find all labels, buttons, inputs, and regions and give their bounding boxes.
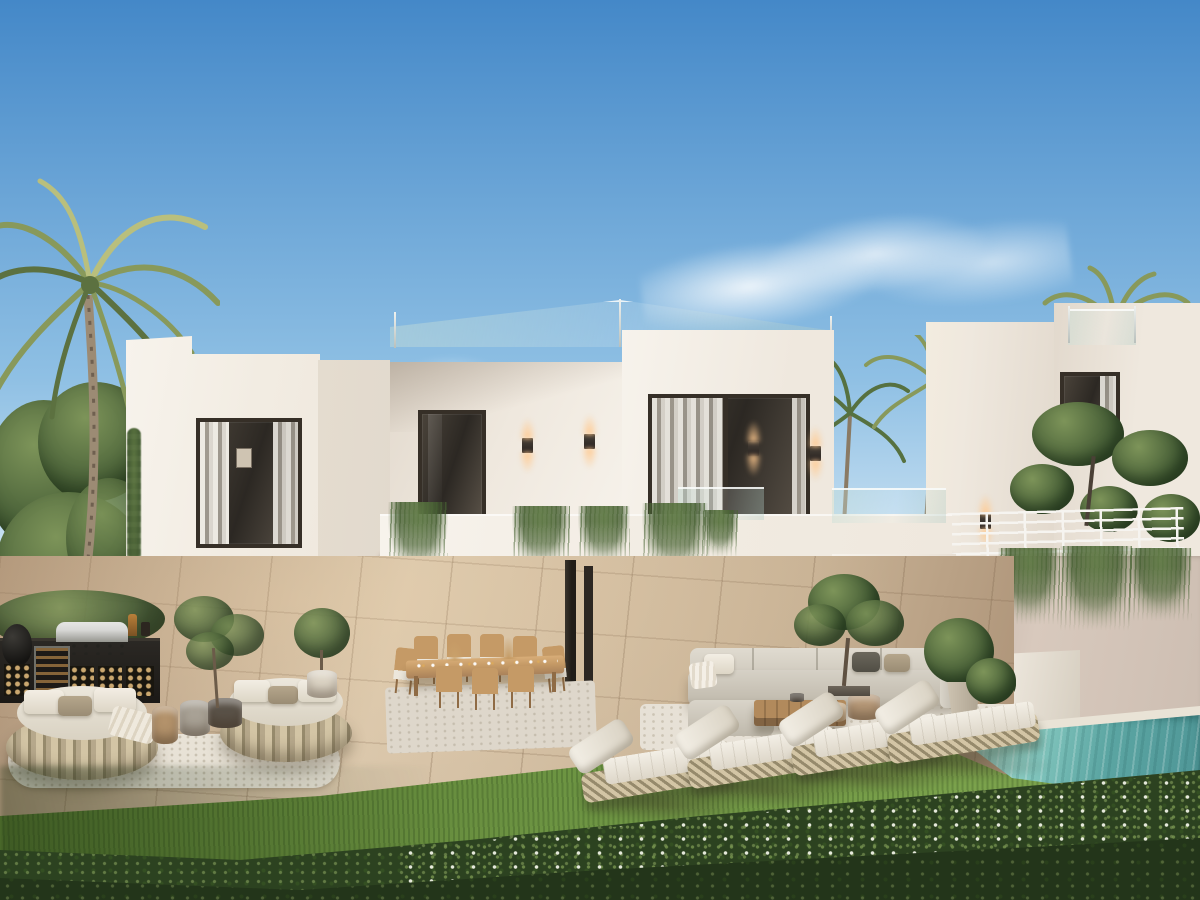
- sofa-throw: [688, 660, 717, 689]
- hanging-plant: [702, 510, 738, 560]
- table-leg: [414, 676, 418, 696]
- trailing-plant: [1060, 546, 1132, 634]
- wall-sconce: [748, 441, 759, 456]
- small-olive-tree: [166, 596, 270, 708]
- neighbor-roof-glass-railing: [1068, 309, 1136, 345]
- tree-canopy: [794, 604, 846, 646]
- wall-sconce: [522, 438, 533, 453]
- jar: [141, 622, 150, 636]
- topiary-canopy: [1112, 430, 1188, 486]
- dining-chair: [436, 666, 462, 708]
- tree-canopy: [186, 632, 234, 670]
- table-leg: [552, 672, 556, 692]
- curtain: [273, 422, 298, 544]
- tree-canopy: [846, 600, 904, 646]
- glass-post: [394, 312, 396, 348]
- olive-tree: [794, 574, 906, 696]
- curtain: [200, 422, 229, 544]
- centerpiece-flowers: [499, 637, 518, 660]
- curtain: [792, 398, 806, 518]
- wall-sconce: [584, 434, 595, 449]
- side-stool: [152, 706, 178, 744]
- glass-post: [619, 299, 621, 347]
- kamado-grill: [2, 624, 32, 666]
- dining-chair: [472, 668, 498, 710]
- topiary-canopy: [1032, 402, 1124, 466]
- terrace-glass-balustrade: [832, 488, 946, 523]
- glass-post: [1134, 306, 1136, 343]
- tree-trunk: [842, 638, 850, 686]
- glass-post: [1068, 306, 1070, 343]
- potted-olive-tree: [292, 608, 354, 700]
- topiary-canopy: [1010, 464, 1074, 514]
- bottle: [128, 614, 137, 636]
- villa-exterior-rendering: [0, 0, 1200, 900]
- centerpiece-flowers: [445, 641, 464, 662]
- trailing-plant: [1128, 548, 1192, 624]
- throw-pillow: [58, 696, 92, 716]
- planter-box: [828, 686, 870, 696]
- bbq-grill: [56, 622, 128, 642]
- tower-upper-window: [196, 418, 302, 548]
- garden-pot: [307, 670, 337, 698]
- dining-chair: [508, 666, 534, 708]
- wall-sconce: [810, 446, 821, 461]
- artwork: [236, 448, 252, 468]
